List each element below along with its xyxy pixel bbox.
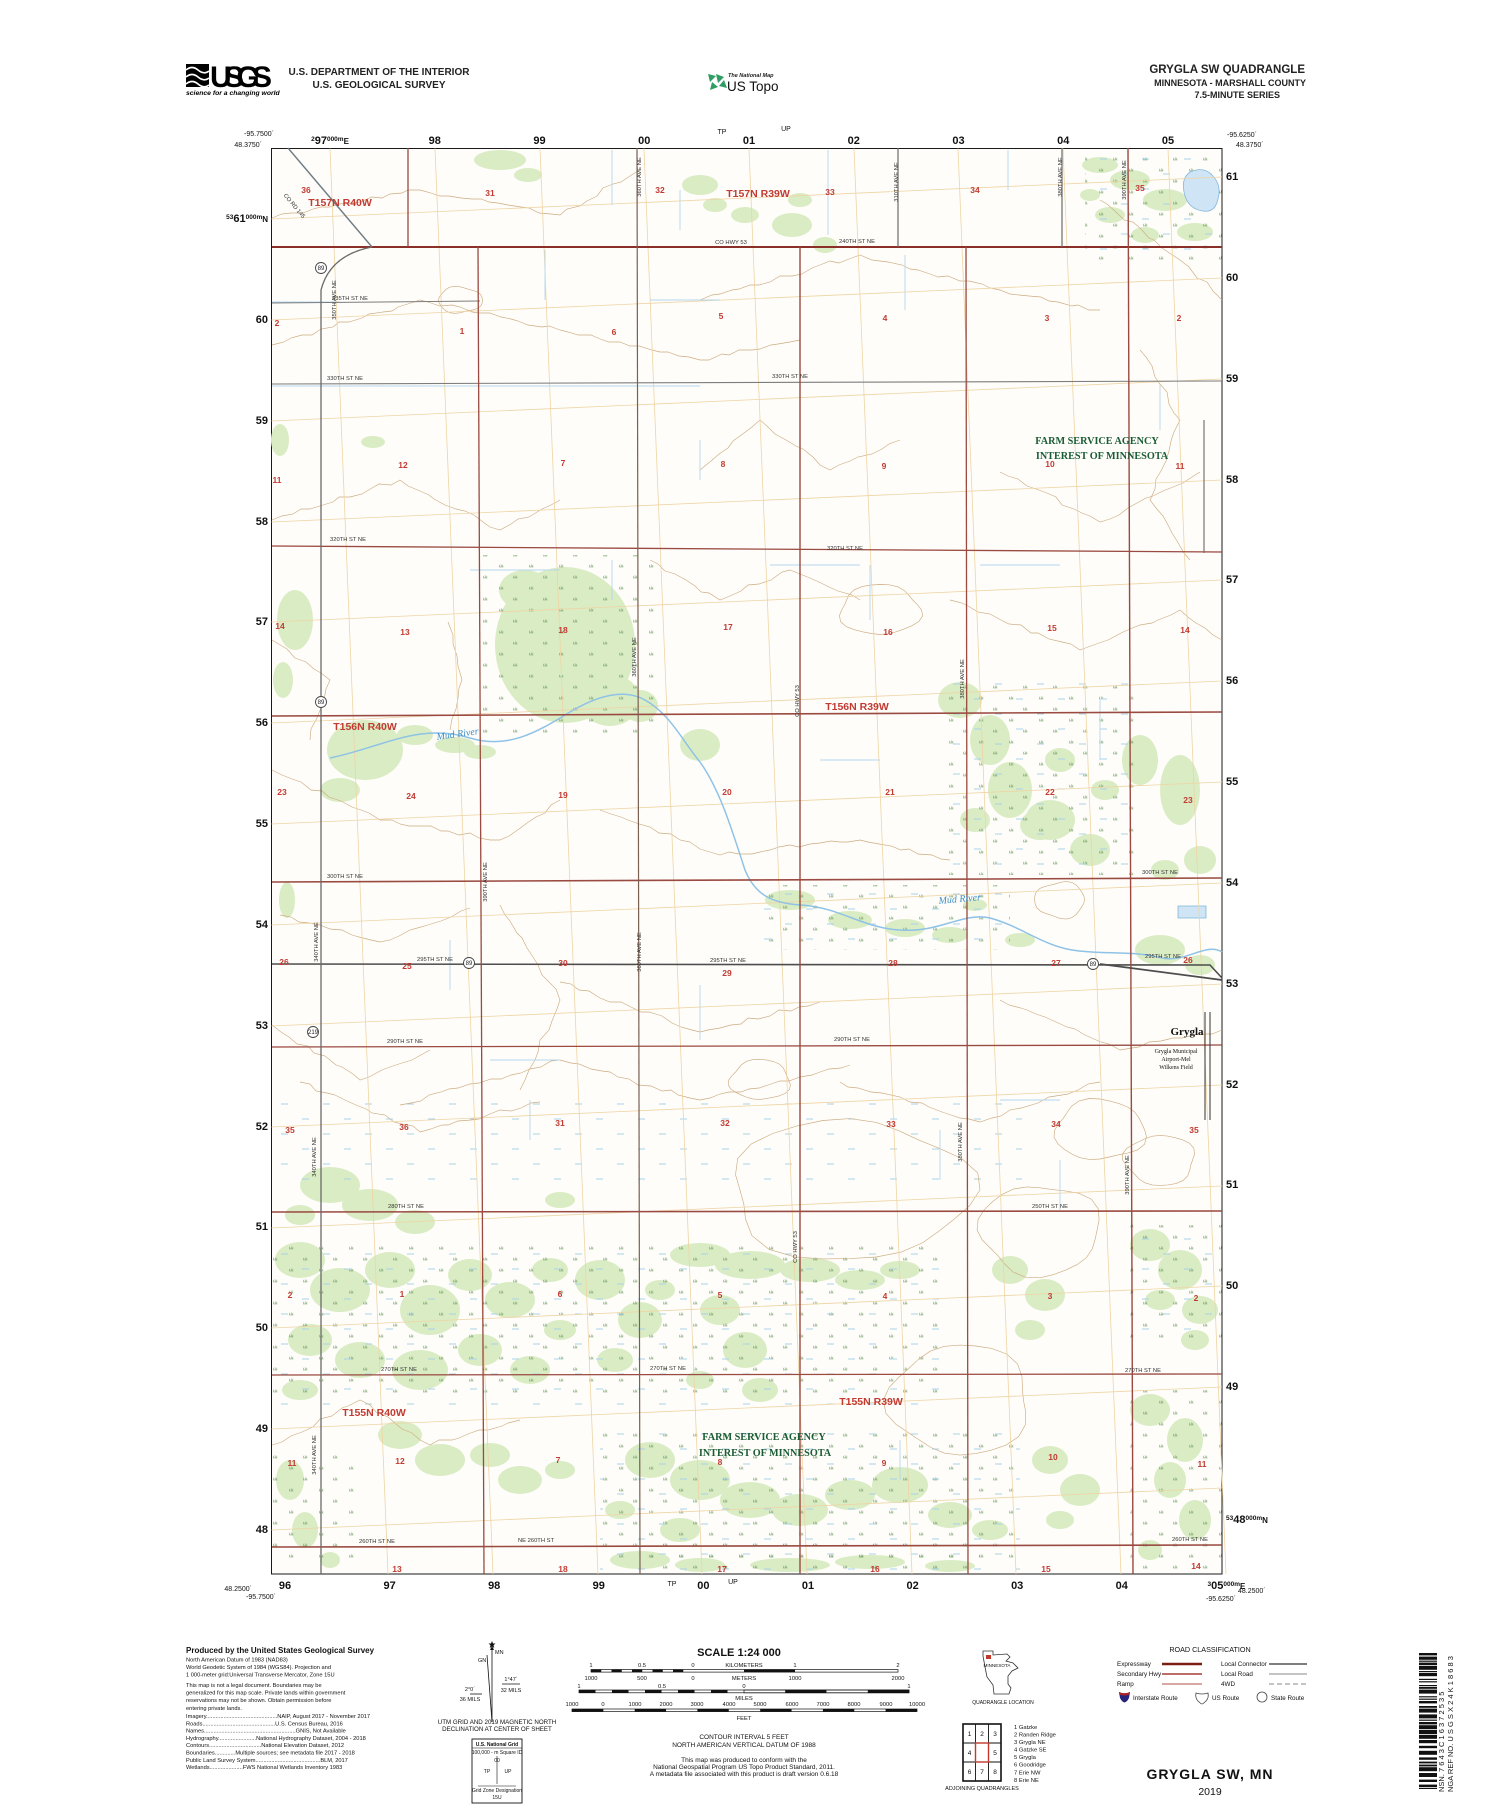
svg-text:89: 89	[1090, 962, 1097, 968]
svg-text:Local Connector: Local Connector	[1221, 1661, 1267, 1668]
svg-text:4000: 4000	[723, 1702, 736, 1708]
svg-text:320TH ST NE: 320TH ST NE	[827, 546, 863, 552]
svg-text:8 Erie NE: 8 Erie NE	[1014, 1778, 1039, 1784]
svg-text:48.3750´: 48.3750´	[234, 142, 262, 149]
svg-text:TP: TP	[718, 129, 727, 136]
svg-text:National Geospatial Program US: National Geospatial Program US Topo Prod…	[653, 1764, 835, 1771]
svg-text:Contours......................: Contours................................…	[186, 1743, 344, 1749]
svg-text:Grygla Municipal: Grygla Municipal	[1155, 1049, 1198, 1055]
svg-text:T155N R40W: T155N R40W	[342, 1407, 406, 1419]
svg-text:Ramp: Ramp	[1117, 1681, 1134, 1688]
svg-text:89: 89	[318, 266, 325, 272]
svg-text:26: 26	[1183, 955, 1193, 965]
svg-text:01: 01	[802, 1580, 814, 1592]
svg-text:14: 14	[1191, 1561, 1201, 1571]
svg-text:48.2500´: 48.2500´	[224, 1586, 252, 1593]
svg-text:5361000mN: 5361000mN	[226, 213, 268, 225]
svg-text:Names.........................: Names...................................…	[186, 1729, 346, 1735]
svg-text:300TH ST NE: 300TH ST NE	[327, 874, 363, 880]
svg-text:03: 03	[952, 135, 964, 147]
svg-text:55: 55	[1226, 776, 1238, 788]
svg-text:35: 35	[1189, 1125, 1199, 1135]
svg-text:14: 14	[275, 621, 285, 631]
svg-text:97: 97	[383, 1580, 395, 1592]
svg-text:2 Randen Ridge: 2 Randen Ridge	[1014, 1733, 1056, 1739]
svg-text:350TH AVE NE: 350TH AVE NE	[332, 280, 338, 320]
svg-text:03: 03	[1011, 1580, 1023, 1592]
svg-text:35: 35	[1135, 183, 1145, 193]
svg-text:2: 2	[980, 1731, 984, 1738]
svg-text:340TH AVE NE: 340TH AVE NE	[314, 922, 320, 962]
svg-text:23: 23	[1183, 795, 1193, 805]
svg-text:05: 05	[1162, 135, 1174, 147]
svg-text:CONTOUR INTERVAL 5 FEET: CONTOUR INTERVAL 5 FEET	[699, 1734, 788, 1741]
svg-text:36: 36	[301, 185, 311, 195]
svg-text:3: 3	[1048, 1291, 1053, 1301]
svg-text:1 000-meter grid:Universal Tra: 1 000-meter grid:Universal Transverse Me…	[186, 1673, 335, 1679]
svg-text:DECLINATION AT CENTER OF SHEET: DECLINATION AT CENTER OF SHEET	[442, 1726, 552, 1733]
svg-text:320TH ST NE: 320TH ST NE	[330, 537, 366, 543]
svg-text:340TH AVE NE: 340TH AVE NE	[312, 1435, 318, 1475]
svg-text:4WD: 4WD	[1221, 1681, 1235, 1688]
svg-text:6: 6	[968, 1769, 972, 1776]
svg-text:FEET: FEET	[737, 1716, 752, 1722]
svg-text:0.5: 0.5	[658, 1684, 666, 1690]
svg-text:52: 52	[1226, 1079, 1238, 1091]
svg-text:17: 17	[717, 1564, 727, 1574]
svg-text:Public Land Survey System..: Public Land Survey System...............…	[186, 1758, 348, 1764]
svg-text:NE 260TH ST: NE 260TH ST	[518, 1538, 555, 1544]
svg-text:Secondary Hwy: Secondary Hwy	[1117, 1671, 1162, 1678]
svg-text:10: 10	[1048, 1452, 1058, 1462]
svg-text:0.5: 0.5	[638, 1663, 646, 1669]
svg-text:Expressway: Expressway	[1117, 1661, 1152, 1668]
svg-text:T156N R39W: T156N R39W	[825, 701, 889, 713]
svg-text:01: 01	[743, 135, 755, 147]
svg-text:50: 50	[256, 1322, 268, 1334]
svg-text:56: 56	[256, 717, 268, 729]
svg-text:23: 23	[277, 787, 287, 797]
svg-text:16: 16	[870, 1564, 880, 1574]
svg-text:20: 20	[722, 787, 732, 797]
svg-text:CO HWY 53: CO HWY 53	[715, 240, 747, 246]
svg-text:25: 25	[402, 961, 412, 971]
svg-text:1: 1	[577, 1684, 580, 1690]
svg-text:5000: 5000	[754, 1702, 767, 1708]
svg-text:04: 04	[1057, 135, 1070, 147]
svg-text:0: 0	[691, 1676, 694, 1682]
svg-text:54: 54	[1226, 877, 1239, 889]
svg-text:380TH AVE NE: 380TH AVE NE	[1058, 157, 1064, 197]
svg-text:57: 57	[256, 616, 268, 628]
svg-text:METERS: METERS	[732, 1676, 756, 1682]
svg-text:56: 56	[1226, 675, 1238, 687]
svg-text:CO HWY 53: CO HWY 53	[793, 1231, 799, 1263]
svg-text:61: 61	[1226, 171, 1238, 183]
svg-text:4: 4	[883, 313, 888, 323]
svg-text:0: 0	[742, 1684, 745, 1690]
svg-text:North American Datum of 1983 (: North American Datum of 1983 (NAD83)	[186, 1658, 288, 1664]
svg-text:13: 13	[400, 627, 410, 637]
svg-text:2019: 2019	[1198, 1786, 1222, 1798]
svg-text:02: 02	[906, 1580, 918, 1592]
svg-text:295TH ST NE: 295TH ST NE	[1145, 954, 1181, 960]
svg-text:280TH ST NE: 280TH ST NE	[388, 1204, 424, 1210]
svg-text:58: 58	[256, 516, 268, 528]
svg-text:1: 1	[907, 1684, 910, 1690]
svg-text:99: 99	[533, 135, 545, 147]
svg-text:5: 5	[993, 1750, 997, 1757]
svg-text:15: 15	[1041, 1564, 1051, 1574]
svg-text:MN: MN	[495, 1650, 504, 1656]
svg-text:-95.6250´: -95.6250´	[1227, 132, 1257, 139]
svg-text:2: 2	[896, 1663, 899, 1669]
svg-text:QUADRANGLE LOCATION: QUADRANGLE LOCATION	[972, 1700, 1034, 1706]
svg-text:1: 1	[400, 1289, 405, 1299]
svg-text:NORTH AMERICAN VERTICAL DATUM: NORTH AMERICAN VERTICAL DATUM OF 1988	[672, 1742, 816, 1749]
svg-text:5 Grygla: 5 Grygla	[1014, 1755, 1037, 1761]
svg-text:ADJOINING QUADRANGLES: ADJOINING QUADRANGLES	[945, 1786, 1019, 1792]
svg-text:Roads.........................: Roads...................................…	[186, 1721, 343, 1727]
svg-text:270TH ST NE: 270TH ST NE	[1125, 1368, 1161, 1374]
svg-text:58: 58	[1226, 474, 1238, 486]
svg-text:59: 59	[256, 415, 268, 427]
svg-text:52: 52	[256, 1121, 268, 1133]
svg-text:1 Gatzke: 1 Gatzke	[1014, 1725, 1037, 1731]
svg-text:GRYGLA SW, MN: GRYGLA SW, MN	[1146, 1766, 1273, 1782]
svg-text:00: 00	[638, 135, 650, 147]
svg-text:7: 7	[556, 1455, 561, 1465]
svg-text:11: 11	[1198, 1459, 1207, 1469]
svg-text:entering private lands.: entering private lands.	[186, 1706, 242, 1712]
svg-text:Boundaries.............Multipl: Boundaries.............Multiple sources;…	[186, 1751, 355, 1757]
svg-text:300TH ST NE: 300TH ST NE	[1142, 870, 1178, 876]
svg-text:22: 22	[1045, 787, 1055, 797]
svg-text:13: 13	[392, 1564, 402, 1574]
svg-text:3: 3	[993, 1731, 997, 1738]
svg-text:297000mE: 297000mE	[311, 135, 350, 147]
svg-text:7: 7	[980, 1769, 984, 1776]
svg-text:310TH AVE NE: 310TH AVE NE	[894, 162, 900, 202]
svg-text:60: 60	[256, 314, 268, 326]
svg-text:54: 54	[256, 919, 269, 931]
svg-text:generalized for this map scale: generalized for this map scale. Private …	[186, 1691, 346, 1697]
svg-text:T155N R39W: T155N R39W	[839, 1396, 903, 1408]
svg-text:270TH ST NE: 270TH ST NE	[381, 1367, 417, 1373]
svg-text:17: 17	[723, 622, 733, 632]
svg-text:1000: 1000	[629, 1702, 642, 1708]
svg-text:02: 02	[848, 135, 860, 147]
svg-text:250TH ST NE: 250TH ST NE	[1032, 1204, 1068, 1210]
svg-text:10000: 10000	[909, 1702, 925, 1708]
svg-text:1: 1	[589, 1663, 592, 1669]
svg-text:U.S. DEPARTMENT OF THE INTERIO: U.S. DEPARTMENT OF THE INTERIOR	[289, 67, 471, 78]
svg-text:29: 29	[722, 968, 732, 978]
svg-text:T156N R40W: T156N R40W	[333, 721, 397, 733]
svg-text:48.2500´: 48.2500´	[1238, 1588, 1266, 1595]
svg-text:5348000mN: 5348000mN	[1226, 1514, 1268, 1526]
svg-text:Imagery.......................: Imagery.................................…	[186, 1714, 370, 1720]
svg-text:-95.7500´: -95.7500´	[246, 1594, 276, 1601]
svg-text:4: 4	[968, 1750, 972, 1757]
svg-text:1000: 1000	[789, 1676, 802, 1682]
svg-text:16: 16	[883, 627, 893, 637]
svg-text:360TH AVE NE: 360TH AVE NE	[637, 157, 643, 197]
svg-text:MINNESOTA - MARSHALL COUNTY: MINNESOTA - MARSHALL COUNTY	[1154, 78, 1306, 88]
svg-text:This map was produced to confo: This map was produced to conform with th…	[681, 1757, 807, 1764]
svg-text:7000: 7000	[817, 1702, 830, 1708]
svg-text:89: 89	[466, 961, 473, 967]
svg-text:4 Gatzke SE: 4 Gatzke SE	[1014, 1748, 1047, 1754]
svg-text:GRYGLA SW QUADRANGLE: GRYGLA SW QUADRANGLE	[1149, 64, 1305, 76]
svg-text:US Topo: US Topo	[727, 79, 779, 94]
svg-text:380TH AVE NE: 380TH AVE NE	[960, 659, 966, 699]
svg-text:33: 33	[886, 1119, 896, 1129]
svg-text:330TH ST NE: 330TH ST NE	[772, 374, 808, 380]
svg-text:14: 14	[1180, 625, 1190, 635]
svg-text:270TH ST NE: 270TH ST NE	[650, 1366, 686, 1372]
svg-text:32: 32	[720, 1118, 730, 1128]
svg-text:Airport-Mel: Airport-Mel	[1161, 1057, 1191, 1063]
svg-text:9: 9	[882, 1458, 887, 1468]
svg-text:219: 219	[308, 1030, 319, 1036]
svg-text:53: 53	[256, 1020, 268, 1032]
svg-text:9000: 9000	[880, 1702, 893, 1708]
svg-text:6 Goodridge: 6 Goodridge	[1014, 1763, 1046, 1769]
svg-text:53: 53	[1226, 978, 1238, 990]
svg-text:11: 11	[1176, 461, 1185, 471]
svg-text:7 Erie NW: 7 Erie NW	[1014, 1770, 1041, 1776]
svg-text:2: 2	[275, 318, 280, 328]
svg-text:T157N R40W: T157N R40W	[308, 197, 372, 209]
svg-text:-95.7500´: -95.7500´	[244, 131, 274, 138]
svg-text:96: 96	[279, 1580, 291, 1592]
svg-text:00: 00	[697, 1580, 709, 1592]
svg-text:1000: 1000	[585, 1676, 598, 1682]
svg-text:34: 34	[1051, 1119, 1061, 1129]
svg-text:1: 1	[968, 1731, 972, 1738]
svg-text:INTEREST OF MINNESOTA: INTEREST OF MINNESOTA	[1036, 451, 1169, 462]
svg-text:U.S. GEOLOGICAL SURVEY: U.S. GEOLOGICAL SURVEY	[313, 80, 446, 91]
svg-text:32: 32	[655, 185, 665, 195]
svg-text:19: 19	[558, 790, 568, 800]
svg-text:48: 48	[256, 1524, 268, 1536]
svg-text:2°0´: 2°0´	[465, 1687, 475, 1693]
svg-text:5: 5	[718, 1290, 723, 1300]
svg-text:6000: 6000	[786, 1702, 799, 1708]
svg-text:35: 35	[285, 1125, 295, 1135]
svg-text:4: 4	[883, 1291, 888, 1301]
svg-text:-95.6250´: -95.6250´	[1206, 1596, 1236, 1603]
svg-text:3 Grygla NE: 3 Grygla NE	[1014, 1740, 1046, 1746]
svg-text:INTEREST OF MINNESOTA: INTEREST OF MINNESOTA	[699, 1448, 832, 1459]
svg-text:Grygla: Grygla	[1171, 1026, 1204, 1038]
svg-text:World Geodetic System of 1984: World Geodetic System of 1984 (WGS84). P…	[186, 1665, 331, 1671]
svg-text:260TH ST NE: 260TH ST NE	[359, 1539, 395, 1545]
svg-text:Wetlands.....................F: Wetlands.....................FWS Nationa…	[186, 1765, 342, 1771]
svg-text:This map is not a legal docume: This map is not a legal document. Bounda…	[186, 1683, 322, 1689]
svg-text:3: 3	[1045, 313, 1050, 323]
svg-text:US Route: US Route	[1212, 1695, 1240, 1702]
svg-text:59: 59	[1226, 373, 1238, 385]
svg-text:NSN. 7 6 4 3 C 1 6 3 7 2 5 3: NSN. 7 6 4 3 C 1 6 3 7 2 5 3 5	[1437, 1692, 1446, 1792]
svg-text:UTM GRID AND 2019 MAGNETIC NOR: UTM GRID AND 2019 MAGNETIC NORTH	[438, 1719, 557, 1726]
svg-text:100,000 - m Square ID: 100,000 - m Square ID	[472, 1750, 523, 1756]
svg-text:11: 11	[288, 1458, 297, 1468]
svg-text:28: 28	[888, 958, 898, 968]
svg-text:51: 51	[256, 1221, 268, 1233]
svg-text:32 MILS: 32 MILS	[501, 1688, 522, 1694]
svg-text:State Route: State Route	[1271, 1695, 1305, 1702]
svg-text:27: 27	[1051, 958, 1061, 968]
svg-text:2000: 2000	[892, 1676, 905, 1682]
svg-text:Hydrography...................: Hydrography........................Natio…	[186, 1736, 366, 1742]
svg-text:290TH ST NE: 290TH ST NE	[834, 1037, 870, 1043]
svg-text:55: 55	[256, 818, 268, 830]
svg-text:6: 6	[558, 1289, 563, 1299]
svg-text:04: 04	[1116, 1580, 1129, 1592]
svg-text:8: 8	[993, 1769, 997, 1776]
svg-text:6: 6	[612, 327, 617, 337]
svg-text:34: 34	[970, 185, 980, 195]
svg-text:science for a changing world: science for a changing world	[186, 90, 281, 97]
svg-text:15: 15	[1047, 623, 1057, 633]
svg-text:2000: 2000	[660, 1702, 673, 1708]
svg-text:360TH AVE NE: 360TH AVE NE	[632, 637, 638, 677]
svg-text:1: 1	[460, 326, 465, 336]
svg-text:57: 57	[1226, 574, 1238, 586]
svg-text:500: 500	[637, 1676, 647, 1682]
svg-text:89: 89	[318, 700, 325, 706]
svg-text:MILES: MILES	[735, 1696, 753, 1702]
svg-text:UP: UP	[505, 1769, 513, 1775]
svg-text:KILOMETERS: KILOMETERS	[725, 1663, 762, 1669]
svg-text:FARM SERVICE AGENCY: FARM SERVICE AGENCY	[1035, 436, 1159, 447]
svg-text:1000: 1000	[566, 1702, 579, 1708]
svg-text:5: 5	[719, 311, 724, 321]
svg-text:31: 31	[555, 1118, 565, 1128]
svg-text:390TH AVE NE: 390TH AVE NE	[1122, 160, 1128, 200]
svg-text:290TH ST NE: 290TH ST NE	[387, 1039, 423, 1045]
svg-text:reservations may not be shown.: reservations may not be shown. Obtain pe…	[186, 1698, 331, 1704]
svg-text:Wilkens Field: Wilkens Field	[1159, 1065, 1193, 1071]
svg-text:MINNESOTA: MINNESOTA	[984, 1663, 1012, 1668]
svg-text:8: 8	[721, 459, 726, 469]
svg-text:TP: TP	[668, 1581, 677, 1588]
svg-text:33: 33	[825, 187, 835, 197]
svg-text:18: 18	[558, 1564, 568, 1574]
svg-text:51: 51	[1226, 1179, 1238, 1191]
svg-text:49: 49	[256, 1423, 268, 1435]
svg-text:360TH AVE NE: 360TH AVE NE	[637, 932, 643, 972]
svg-text:380TH AVE NE: 380TH AVE NE	[958, 1122, 964, 1162]
svg-text:240TH ST NE: 240TH ST NE	[839, 239, 875, 245]
svg-text:30: 30	[558, 958, 568, 968]
svg-text:Interstate Route: Interstate Route	[1133, 1695, 1178, 1702]
svg-text:T157N R39W: T157N R39W	[726, 188, 790, 200]
svg-text:26: 26	[279, 957, 289, 967]
svg-text:7.5-MINUTE SERIES: 7.5-MINUTE SERIES	[1194, 90, 1280, 100]
svg-text:18: 18	[558, 625, 568, 635]
svg-text:Local Road: Local Road	[1221, 1671, 1253, 1678]
svg-text:A metadata file associated wit: A metadata file associated with this pro…	[650, 1771, 839, 1778]
svg-text:0: 0	[691, 1663, 694, 1669]
svg-text:98: 98	[488, 1580, 500, 1592]
svg-text:1: 1	[793, 1663, 796, 1669]
svg-text:U.S. National Grid: U.S. National Grid	[476, 1742, 519, 1748]
svg-text:12: 12	[395, 1456, 405, 1466]
svg-text:12: 12	[398, 460, 408, 470]
svg-text:2: 2	[288, 1290, 293, 1300]
svg-text:1°47´: 1°47´	[504, 1677, 517, 1683]
svg-text:0: 0	[601, 1702, 604, 1708]
svg-text:UP: UP	[781, 126, 791, 133]
svg-text:49: 49	[1226, 1381, 1238, 1393]
svg-text:9: 9	[882, 461, 887, 471]
svg-text:36 MILS: 36 MILS	[460, 1697, 481, 1703]
svg-text:CO HWY 53: CO HWY 53	[795, 685, 801, 717]
svg-text:98: 98	[429, 135, 441, 147]
svg-text:24: 24	[406, 791, 416, 801]
svg-text:99: 99	[593, 1580, 605, 1592]
svg-text:ROAD CLASSIFICATION: ROAD CLASSIFICATION	[1169, 1645, 1250, 1654]
svg-text:48.3750´: 48.3750´	[1236, 142, 1264, 149]
svg-text:50: 50	[1226, 1280, 1238, 1292]
svg-text:UP: UP	[728, 1579, 738, 1586]
svg-text:60: 60	[1226, 272, 1238, 284]
svg-text:2: 2	[1194, 1293, 1199, 1303]
svg-text:NGA REF NO. U S G S X 2 4 K 1: NGA REF NO. U S G S X 2 4 K 1 8 6 8 3	[1446, 1656, 1455, 1792]
svg-text:330TH ST NE: 330TH ST NE	[327, 376, 363, 382]
svg-text:295TH ST NE: 295TH ST NE	[710, 958, 746, 964]
svg-text:390TH AVE NE: 390TH AVE NE	[483, 862, 489, 902]
svg-text:SCALE 1:24 000: SCALE 1:24 000	[697, 1647, 781, 1659]
svg-text:Grid Zone Designation: Grid Zone Designation	[472, 1788, 522, 1794]
svg-text:TP: TP	[484, 1769, 491, 1775]
svg-text:FARM SERVICE AGENCY: FARM SERVICE AGENCY	[702, 1432, 826, 1443]
svg-text:8000: 8000	[848, 1702, 861, 1708]
svg-text:11: 11	[273, 475, 282, 485]
svg-text:36: 36	[399, 1122, 409, 1132]
svg-text:340TH AVE NE: 340TH AVE NE	[312, 1137, 318, 1177]
svg-text:Produced by the United States: Produced by the United States Geological…	[186, 1646, 375, 1655]
svg-text:GN: GN	[478, 1658, 486, 1664]
svg-text:7: 7	[561, 458, 566, 468]
svg-text:260TH ST NE: 260TH ST NE	[1172, 1537, 1208, 1543]
svg-text:21: 21	[885, 787, 895, 797]
svg-text:2: 2	[1177, 313, 1182, 323]
svg-text:295TH ST NE: 295TH ST NE	[417, 957, 453, 963]
svg-text:31: 31	[485, 188, 495, 198]
svg-text:15U: 15U	[492, 1795, 502, 1801]
svg-text:390TH AVE NE: 390TH AVE NE	[1125, 1155, 1131, 1195]
svg-text:3000: 3000	[691, 1702, 704, 1708]
